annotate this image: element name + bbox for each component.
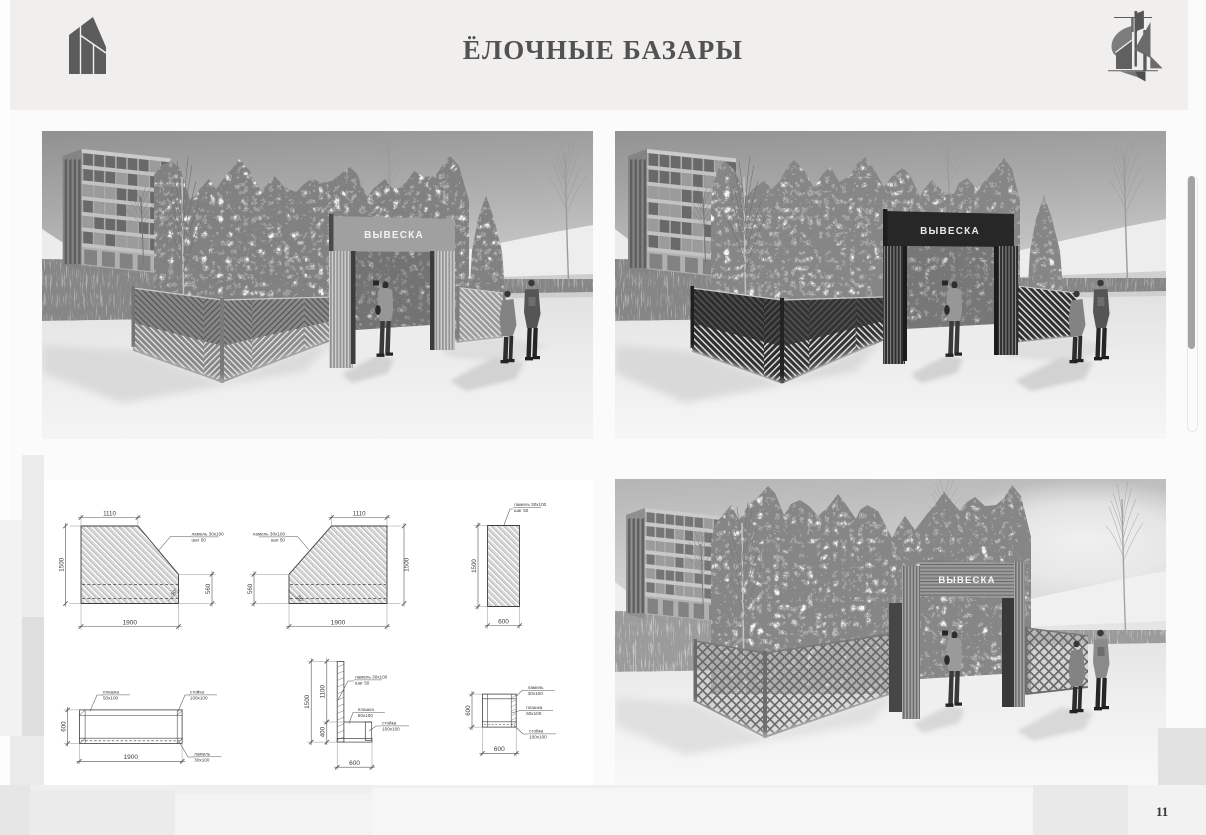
svg-text:1900: 1900 <box>123 619 138 626</box>
svg-text:1110: 1110 <box>103 510 116 517</box>
svg-text:100х100: 100х100 <box>529 735 547 740</box>
svg-text:стойка: стойка <box>382 720 397 726</box>
svg-text:ламель 30х100: ламель 30х100 <box>253 532 286 537</box>
svg-text:1500: 1500 <box>471 559 478 573</box>
svg-text:30х100: 30х100 <box>528 691 544 696</box>
svg-text:50х100: 50х100 <box>526 711 542 716</box>
svg-text:600: 600 <box>498 618 509 625</box>
svg-text:ВЫВЕСКА: ВЫВЕСКА <box>920 226 980 237</box>
svg-text:шаг 50: шаг 50 <box>271 538 286 543</box>
svg-text:ламель: ламель <box>528 685 544 690</box>
svg-text:стойка: стойка <box>190 689 205 695</box>
svg-text:ламель 30х100: ламель 30х100 <box>192 532 225 537</box>
svg-text:шаг 50: шаг 50 <box>355 681 370 686</box>
svg-text:1110: 1110 <box>353 510 366 517</box>
svg-text:100х100: 100х100 <box>382 727 400 732</box>
svg-text:1900: 1900 <box>331 619 346 626</box>
svg-text:600: 600 <box>349 760 360 767</box>
svg-text:100х100: 100х100 <box>190 696 208 701</box>
svg-text:плашка: плашка <box>358 707 375 712</box>
svg-text:600: 600 <box>494 746 505 753</box>
svg-text:ламель 30х100: ламель 30х100 <box>355 675 388 680</box>
svg-text:50х100: 50х100 <box>358 713 374 718</box>
svg-text:560: 560 <box>247 583 254 594</box>
svg-text:1500: 1500 <box>404 557 411 571</box>
svg-text:ламель: ламель <box>194 751 210 756</box>
svg-text:плашка: плашка <box>103 690 120 695</box>
svg-text:1500: 1500 <box>58 557 65 571</box>
svg-text:600: 600 <box>465 705 472 716</box>
svg-text:ламель 30х100: ламель 30х100 <box>514 502 547 507</box>
svg-text:1900: 1900 <box>124 754 139 761</box>
svg-text:шаг 50: шаг 50 <box>192 538 207 543</box>
svg-text:400: 400 <box>320 726 327 737</box>
svg-text:560: 560 <box>205 583 212 594</box>
svg-text:600: 600 <box>61 721 68 732</box>
svg-text:плашка: плашка <box>526 705 543 710</box>
svg-text:50х100: 50х100 <box>103 696 119 701</box>
svg-text:30х100: 30х100 <box>194 757 210 762</box>
svg-text:стойка: стойка <box>529 728 544 734</box>
svg-text:1500: 1500 <box>304 694 311 708</box>
svg-text:1100: 1100 <box>320 684 327 698</box>
svg-text:ВЫВЕСКА: ВЫВЕСКА <box>938 575 995 586</box>
svg-text:шаг 50: шаг 50 <box>514 508 529 513</box>
svg-text:ВЫВЕСКА: ВЫВЕСКА <box>364 230 424 241</box>
